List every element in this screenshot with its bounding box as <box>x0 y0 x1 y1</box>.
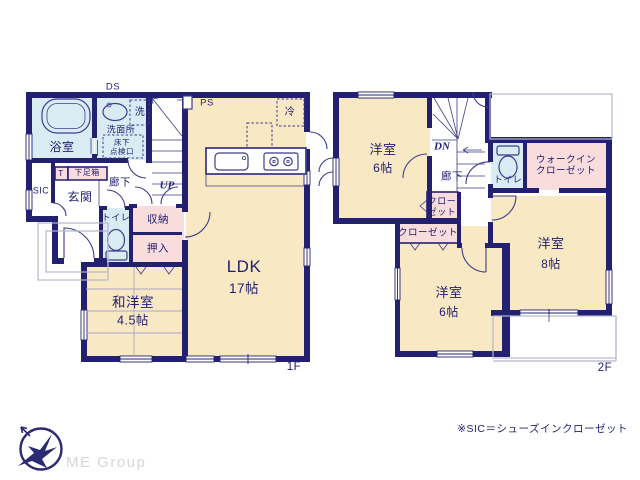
fridge-label: 冷 <box>285 107 296 119</box>
ldk-name-label: LDK <box>227 257 262 277</box>
f1-plan <box>26 92 327 364</box>
brand-name: ME Group <box>66 454 146 471</box>
floor-2f-label: 2F <box>598 362 612 376</box>
duct-space-label: DS <box>106 81 120 92</box>
f1-room-fills <box>30 96 306 358</box>
sic-label: SIC <box>33 186 50 197</box>
shoe-box-label: 下足箱 <box>74 168 100 178</box>
floor-1f-label: 1F <box>287 361 301 375</box>
oshiire-label: 押入 <box>147 243 169 256</box>
room-nw-size-label: 6帖 <box>373 161 393 175</box>
floor-hatch-label: 床下 点検口 <box>110 138 134 156</box>
washer-label: 洗 <box>135 107 146 119</box>
closet-wide-label: クローゼット <box>398 227 458 238</box>
f2-plan <box>319 92 616 361</box>
shoe-t-label: T <box>58 168 64 178</box>
washroom-label: 洗面所 <box>107 125 136 136</box>
ldk-size-label: 17帖 <box>229 281 259 297</box>
stairs-up-label: UP <box>160 179 175 192</box>
toilet-1f-label: トイレ <box>102 213 131 224</box>
porch-steps <box>38 223 108 280</box>
pipe-space-label: PS <box>200 97 214 108</box>
floorplan-page: DS 浴室 洗 洗面所 床下 点検口 PS 冷 UP 廊下 T 下足箱 SIC … <box>0 0 640 480</box>
entrance-label: 玄関 <box>67 190 92 204</box>
walk-in-closet-label: ウォークイン クローゼット <box>536 155 596 178</box>
room-s-name-label: 洋室 <box>435 285 462 301</box>
sic-footnote: ※SIC＝シューズインクローゼット <box>400 421 628 436</box>
stairs-dn-label: DN <box>434 140 450 153</box>
balcony <box>493 316 616 361</box>
hall-2f-label: 廊下 <box>441 171 463 184</box>
hall-1f-label: 廊下 <box>109 177 131 190</box>
room-nw-name-label: 洋室 <box>369 142 396 158</box>
room-s-size-label: 6帖 <box>439 305 459 319</box>
storage-label: 収納 <box>147 214 169 227</box>
roof-void-outline <box>490 94 612 139</box>
washitsu-name-label: 和洋室 <box>112 295 154 311</box>
washitsu-size-label: 4.5帖 <box>117 314 149 329</box>
toilet-2f-label: トイレ <box>494 175 523 186</box>
brand-logo <box>18 427 62 470</box>
closet-small-label: クロー ゼット <box>428 196 457 218</box>
bathroom-label: 浴室 <box>49 140 74 154</box>
room-e-size-label: 8帖 <box>541 257 561 271</box>
room-e-name-label: 洋室 <box>537 236 564 252</box>
